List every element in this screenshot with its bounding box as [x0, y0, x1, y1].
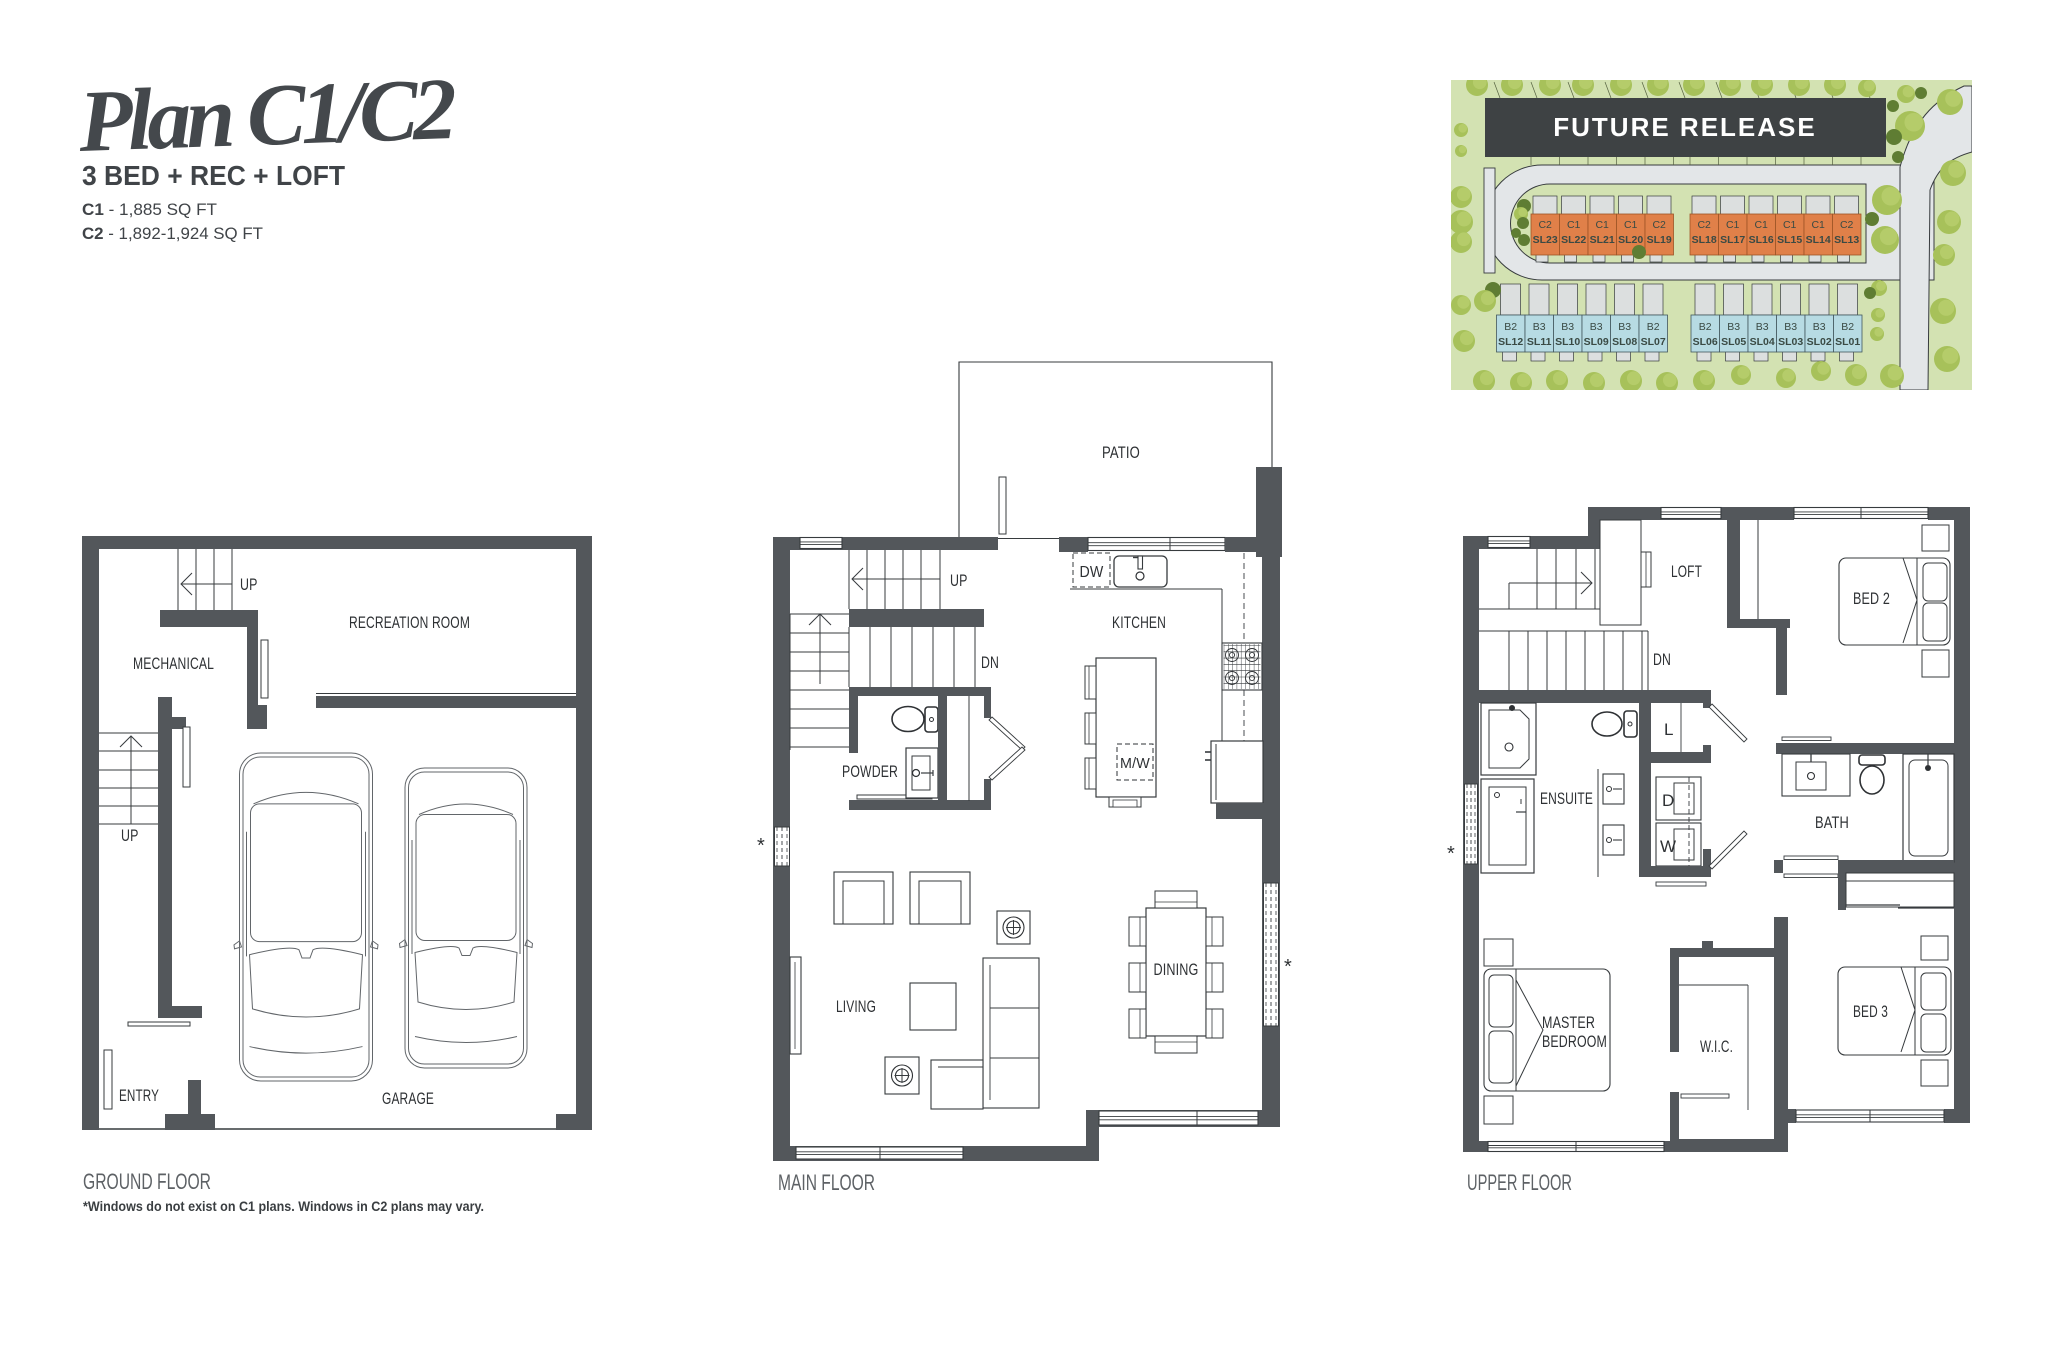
svg-text:L: L [1664, 720, 1674, 739]
svg-text:SL06: SL06 [1693, 336, 1718, 348]
svg-text:C1 - 1,885 SQ FT: C1 - 1,885 SQ FT [82, 200, 217, 219]
svg-text:GARAGE: GARAGE [382, 1089, 434, 1108]
svg-text:C2: C2 [1697, 219, 1711, 231]
svg-text:ENTRY: ENTRY [119, 1086, 159, 1105]
svg-text:UP: UP [121, 826, 139, 845]
svg-text:B3: B3 [1590, 321, 1603, 333]
svg-text:SL15: SL15 [1777, 234, 1802, 246]
svg-text:*: * [757, 835, 765, 857]
svg-text:SL13: SL13 [1834, 234, 1859, 246]
svg-text:*Windows do not exist on C1 pl: *Windows do not exist on C1 plans. Windo… [83, 1199, 484, 1214]
svg-text:ENSUITE: ENSUITE [1540, 789, 1593, 808]
svg-text:B2: B2 [1699, 321, 1712, 333]
svg-text:SL01: SL01 [1835, 336, 1860, 348]
svg-text:B3: B3 [1618, 321, 1631, 333]
svg-text:FUTURE RELEASE: FUTURE RELEASE [1553, 112, 1816, 142]
svg-text:SL02: SL02 [1807, 336, 1832, 348]
svg-text:D: D [1662, 791, 1674, 810]
svg-text:BEDROOM: BEDROOM [1542, 1032, 1607, 1051]
svg-text:W.I.C.: W.I.C. [1700, 1037, 1733, 1056]
svg-text:C1: C1 [1726, 219, 1740, 231]
svg-text:C1: C1 [1624, 219, 1638, 231]
svg-text:SL03: SL03 [1778, 336, 1803, 348]
svg-text:POWDER: POWDER [842, 762, 898, 781]
svg-text:C1: C1 [1567, 219, 1581, 231]
svg-text:SL11: SL11 [1527, 336, 1552, 348]
svg-text:C1: C1 [1595, 219, 1609, 231]
svg-text:3 BED + REC + LOFT: 3 BED + REC + LOFT [82, 160, 345, 191]
svg-text:C2: C2 [1652, 219, 1666, 231]
svg-text:LOFT: LOFT [1671, 562, 1702, 581]
svg-text:SL08: SL08 [1612, 336, 1637, 348]
svg-text:SL14: SL14 [1806, 234, 1831, 246]
svg-text:SL21: SL21 [1590, 234, 1615, 246]
svg-text:C2: C2 [1538, 219, 1552, 231]
svg-text:SL19: SL19 [1647, 234, 1672, 246]
svg-text:SL07: SL07 [1641, 336, 1666, 348]
svg-text:DW: DW [1080, 564, 1104, 581]
svg-text:UP: UP [240, 575, 258, 594]
svg-text:RECREATION ROOM: RECREATION ROOM [349, 613, 470, 632]
svg-text:LIVING: LIVING [836, 997, 876, 1016]
svg-text:SL16: SL16 [1749, 234, 1774, 246]
svg-text:SL17: SL17 [1720, 234, 1745, 246]
svg-text:MECHANICAL: MECHANICAL [133, 654, 214, 673]
svg-text:PATIO: PATIO [1102, 443, 1140, 462]
svg-text:B2: B2 [1841, 321, 1854, 333]
svg-text:*: * [1284, 956, 1292, 978]
svg-text:B3: B3 [1727, 321, 1740, 333]
svg-text:SL23: SL23 [1533, 234, 1558, 246]
svg-text:MASTER: MASTER [1542, 1013, 1595, 1032]
svg-text:GROUND FLOOR: GROUND FLOOR [83, 1169, 211, 1194]
svg-text:BED 3: BED 3 [1853, 1002, 1888, 1021]
svg-text:B2: B2 [1504, 321, 1517, 333]
svg-text:C1: C1 [1783, 219, 1797, 231]
svg-text:KITCHEN: KITCHEN [1112, 613, 1166, 632]
svg-text:DINING: DINING [1154, 960, 1199, 979]
svg-text:SL10: SL10 [1555, 336, 1580, 348]
svg-text:C2: C2 [1840, 219, 1854, 231]
svg-text:BATH: BATH [1815, 813, 1849, 832]
svg-text:SL09: SL09 [1584, 336, 1609, 348]
svg-text:SL12: SL12 [1498, 336, 1523, 348]
svg-text:*: * [1447, 843, 1455, 865]
svg-text:DN: DN [981, 653, 999, 672]
svg-text:SL20: SL20 [1618, 234, 1643, 246]
svg-text:UP: UP [950, 571, 968, 590]
svg-text:B3: B3 [1756, 321, 1769, 333]
svg-text:SL05: SL05 [1721, 336, 1746, 348]
svg-text:SL04: SL04 [1750, 336, 1775, 348]
svg-text:C1: C1 [1811, 219, 1825, 231]
svg-text:B3: B3 [1813, 321, 1826, 333]
svg-text:DN: DN [1653, 650, 1671, 669]
svg-text:C2 - 1,892-1,924 SQ FT: C2 - 1,892-1,924 SQ FT [82, 224, 263, 243]
svg-text:B3: B3 [1784, 321, 1797, 333]
svg-text:Plan C1/C2: Plan C1/C2 [76, 61, 456, 171]
svg-text:B3: B3 [1561, 321, 1574, 333]
svg-text:B2: B2 [1647, 321, 1660, 333]
svg-text:B3: B3 [1533, 321, 1546, 333]
svg-text:C1: C1 [1754, 219, 1768, 231]
svg-text:MAIN FLOOR: MAIN FLOOR [778, 1170, 875, 1195]
svg-text:SL18: SL18 [1692, 234, 1717, 246]
svg-text:M/W: M/W [1120, 755, 1151, 772]
svg-text:SL22: SL22 [1561, 234, 1586, 246]
svg-text:UPPER FLOOR: UPPER FLOOR [1467, 1170, 1572, 1195]
svg-text:W: W [1660, 837, 1676, 856]
svg-text:BED 2: BED 2 [1853, 589, 1890, 608]
